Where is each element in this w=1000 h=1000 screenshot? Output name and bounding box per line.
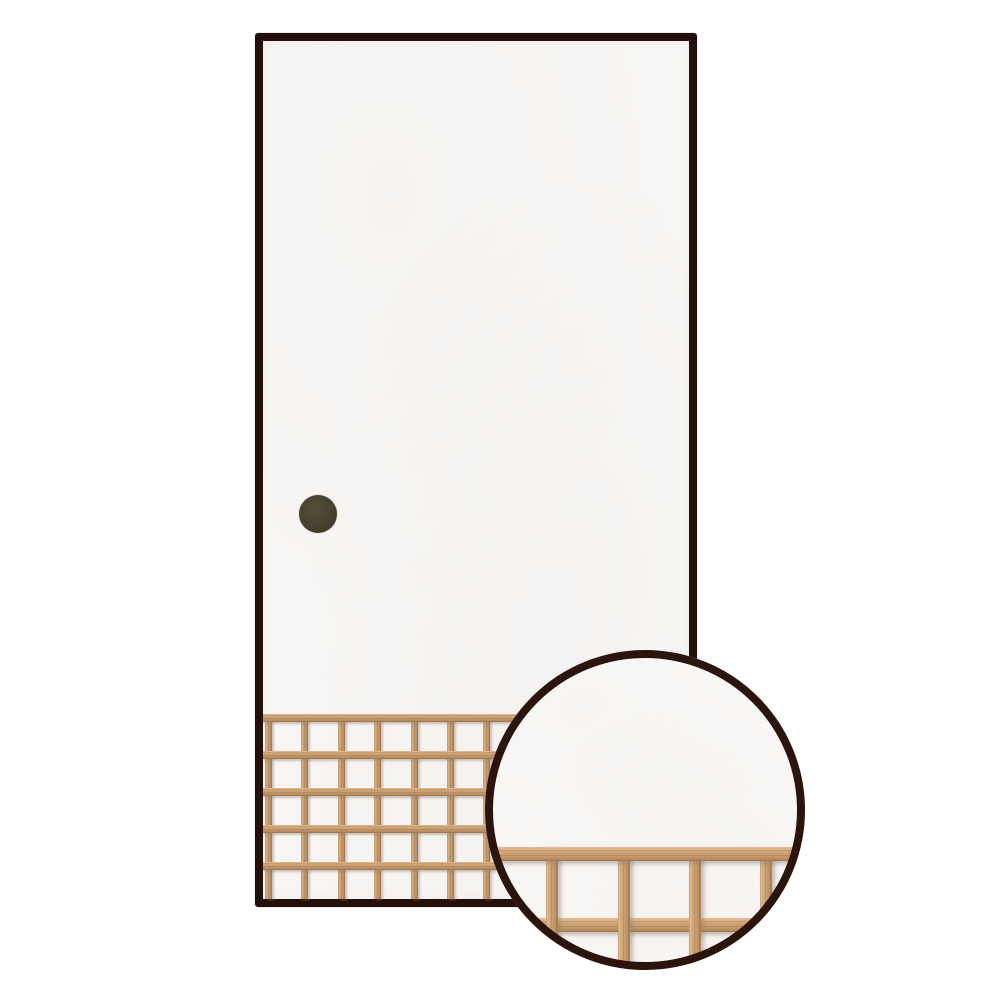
- lattice-vertical-bar: [301, 714, 308, 899]
- magnifier-detail-inset: [485, 650, 805, 970]
- lattice-vertical-bar: [265, 714, 272, 899]
- inset-lattice-vertical-bar: [485, 847, 487, 970]
- inset-lattice-vertical-bar: [618, 847, 630, 970]
- inset-lattice-vertical-bar: [689, 847, 701, 970]
- inset-lattice-vertical-bar: [760, 847, 772, 970]
- inset-lattice-horizontal-bar: [485, 847, 805, 861]
- door-pull-handle: [299, 495, 337, 533]
- inset-lattice-horizontal-bar: [485, 918, 805, 932]
- product-image-canvas: [0, 0, 1000, 1000]
- lattice-vertical-bar: [411, 714, 418, 899]
- lattice-vertical-bar: [447, 714, 454, 899]
- inset-lattice-vertical-bar: [546, 847, 558, 970]
- lattice-vertical-bar: [374, 714, 381, 899]
- lattice-vertical-bar: [338, 714, 345, 899]
